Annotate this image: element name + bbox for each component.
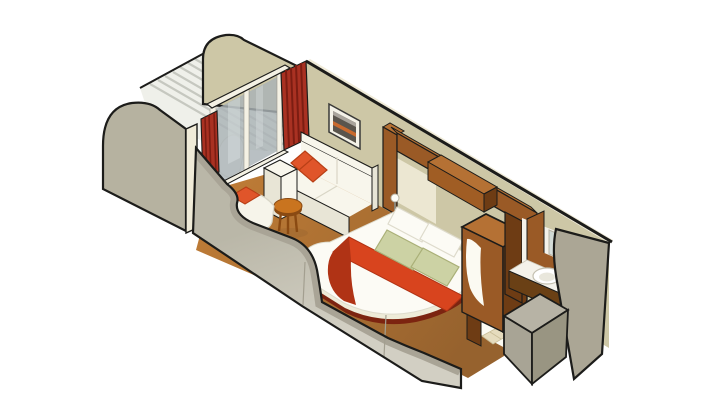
stateroom-cutaway-svg <box>0 0 726 409</box>
glass-reflection-2 <box>256 85 263 149</box>
glass-reflection-1 <box>228 97 240 164</box>
near-partition-face <box>103 103 186 231</box>
side-table-top <box>274 199 302 214</box>
bedside-lamp <box>391 194 399 202</box>
vanity-sink-basin <box>539 273 555 282</box>
door-stile-center <box>244 89 249 175</box>
stateroom-cutaway-figure <box>0 0 726 409</box>
sofa-right-panel <box>372 165 378 211</box>
